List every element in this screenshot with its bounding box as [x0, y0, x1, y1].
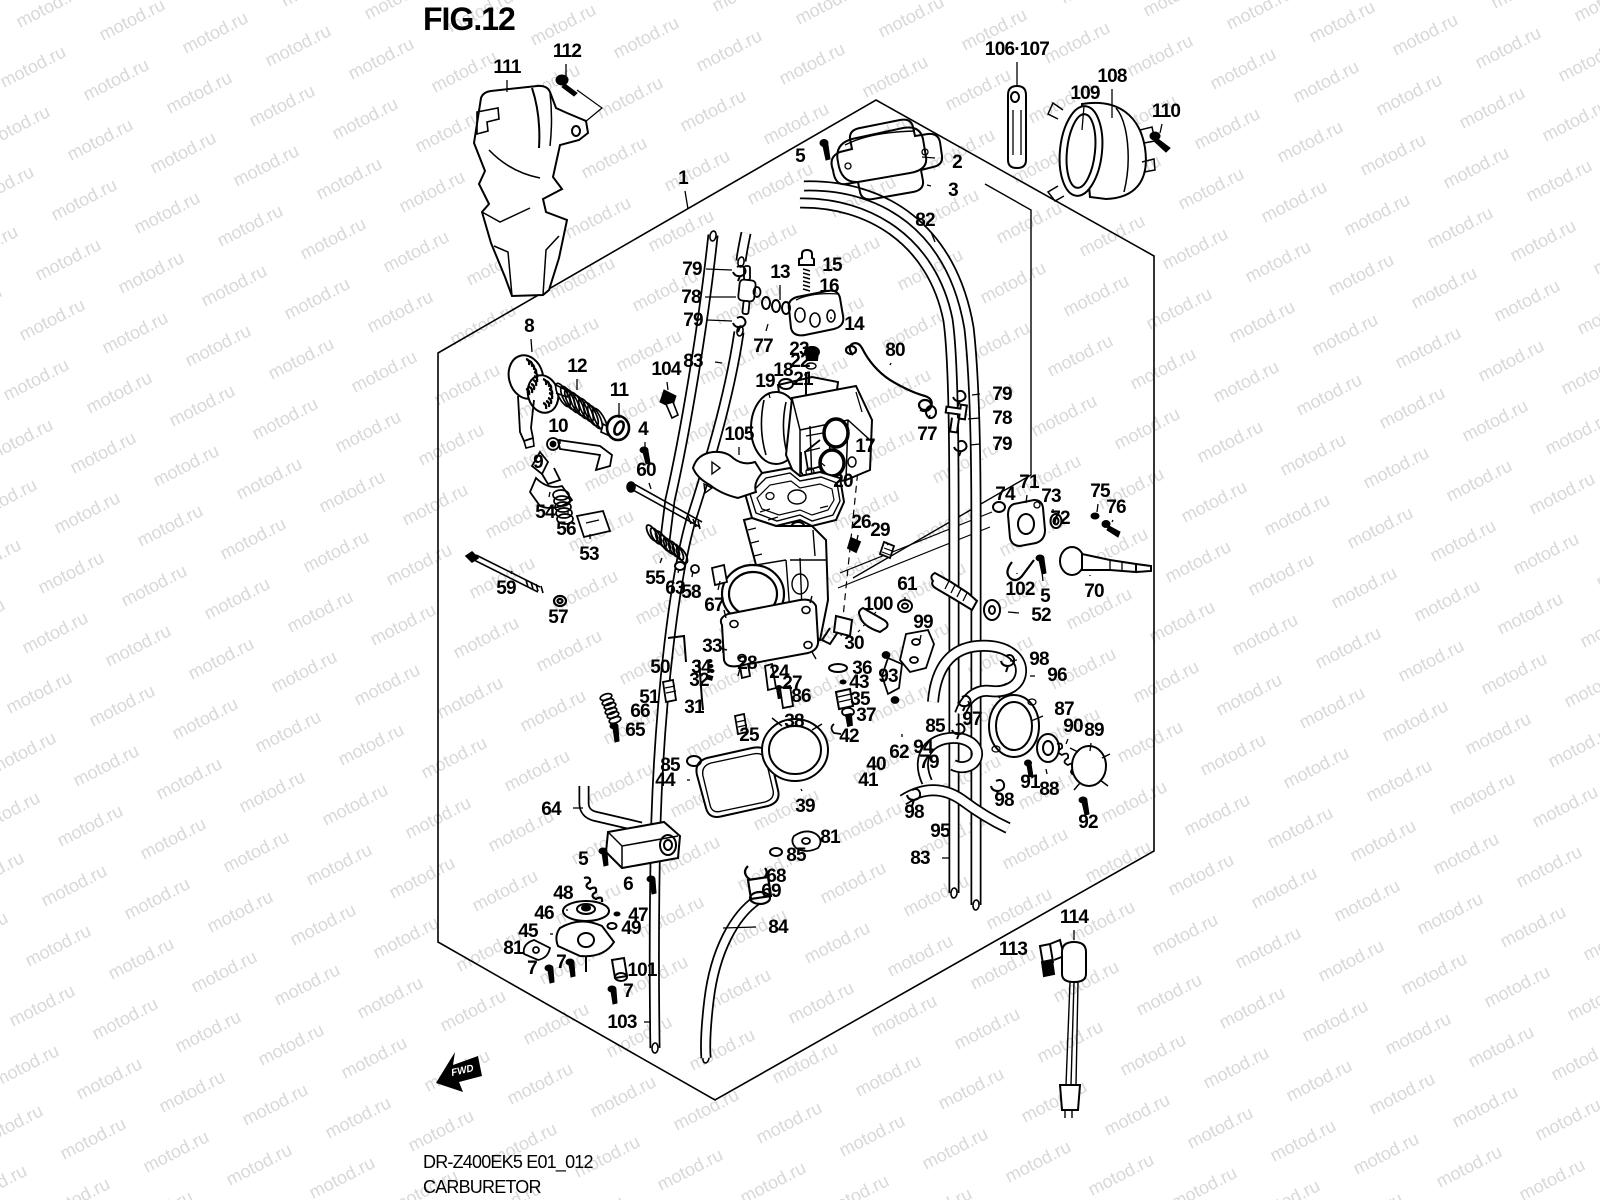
- svg-text:79: 79: [683, 310, 703, 331]
- svg-text:19: 19: [755, 371, 775, 392]
- svg-text:11: 11: [610, 380, 630, 401]
- svg-text:5: 5: [1040, 586, 1051, 607]
- svg-text:79: 79: [992, 384, 1012, 405]
- svg-text:100: 100: [863, 594, 893, 615]
- svg-text:88: 88: [1039, 779, 1059, 800]
- svg-text:80: 80: [885, 340, 905, 361]
- svg-text:25: 25: [739, 725, 760, 746]
- svg-text:12: 12: [567, 356, 587, 377]
- svg-text:32: 32: [689, 670, 709, 691]
- svg-text:106·107: 106·107: [985, 39, 1049, 60]
- svg-text:29: 29: [870, 520, 890, 541]
- svg-text:5: 5: [795, 146, 806, 167]
- svg-text:111: 111: [493, 57, 521, 78]
- svg-text:98: 98: [1029, 649, 1049, 670]
- svg-text:17: 17: [855, 436, 875, 457]
- svg-text:42: 42: [839, 726, 859, 747]
- svg-text:33: 33: [702, 636, 722, 657]
- svg-text:57: 57: [548, 607, 568, 628]
- svg-text:77: 77: [753, 336, 773, 357]
- svg-text:7: 7: [527, 958, 537, 979]
- svg-text:9: 9: [533, 452, 543, 473]
- svg-text:15: 15: [822, 255, 843, 276]
- svg-text:89: 89: [1084, 720, 1104, 741]
- svg-text:90: 90: [1063, 716, 1083, 737]
- svg-text:14: 14: [844, 314, 865, 335]
- svg-text:91: 91: [1020, 772, 1041, 793]
- svg-text:60: 60: [636, 460, 656, 481]
- svg-text:67: 67: [704, 595, 724, 616]
- svg-text:37: 37: [856, 705, 876, 726]
- svg-text:101: 101: [627, 960, 658, 981]
- svg-text:105: 105: [724, 424, 755, 445]
- svg-text:113: 113: [999, 939, 1027, 960]
- svg-text:6: 6: [623, 874, 633, 895]
- svg-text:78: 78: [681, 287, 701, 308]
- svg-text:7: 7: [623, 981, 633, 1002]
- svg-text:84: 84: [768, 917, 789, 938]
- svg-text:104: 104: [651, 359, 682, 380]
- svg-text:65: 65: [625, 720, 646, 741]
- svg-text:53: 53: [579, 544, 599, 565]
- svg-text:81: 81: [503, 938, 524, 959]
- svg-text:66: 66: [630, 701, 650, 722]
- svg-text:10: 10: [548, 416, 568, 437]
- svg-text:38: 38: [784, 711, 804, 732]
- svg-text:72: 72: [1050, 508, 1070, 529]
- svg-text:4: 4: [638, 419, 649, 440]
- svg-text:85: 85: [925, 716, 946, 737]
- svg-text:78: 78: [992, 408, 1012, 429]
- svg-text:79: 79: [919, 752, 939, 773]
- svg-text:24: 24: [769, 662, 790, 683]
- svg-text:85: 85: [786, 845, 807, 866]
- svg-text:81: 81: [820, 827, 841, 848]
- svg-text:98: 98: [994, 790, 1014, 811]
- svg-text:48: 48: [553, 883, 573, 904]
- svg-text:114: 114: [1060, 907, 1089, 928]
- svg-text:77: 77: [917, 424, 937, 445]
- svg-text:92: 92: [1078, 812, 1098, 833]
- svg-text:26: 26: [851, 512, 871, 533]
- svg-text:55: 55: [645, 568, 666, 589]
- svg-text:59: 59: [496, 578, 516, 599]
- svg-text:50: 50: [650, 657, 670, 678]
- svg-text:103: 103: [607, 1012, 637, 1033]
- svg-text:61: 61: [897, 574, 918, 595]
- svg-text:74: 74: [995, 484, 1016, 505]
- svg-text:52: 52: [1031, 605, 1051, 626]
- svg-text:8: 8: [524, 316, 534, 337]
- svg-text:83: 83: [683, 351, 703, 372]
- svg-text:76: 76: [1106, 497, 1126, 518]
- svg-text:96: 96: [1047, 665, 1067, 686]
- svg-text:58: 58: [681, 582, 701, 603]
- svg-text:DR-Z400EK5 E01_012: DR-Z400EK5 E01_012: [423, 1152, 594, 1173]
- svg-text:99: 99: [913, 612, 933, 633]
- svg-text:73: 73: [1041, 486, 1061, 507]
- svg-text:31: 31: [684, 697, 705, 718]
- svg-text:69: 69: [761, 881, 781, 902]
- svg-text:2: 2: [952, 152, 962, 173]
- svg-text:56: 56: [556, 519, 576, 540]
- svg-text:97: 97: [962, 709, 982, 730]
- svg-text:102: 102: [1005, 579, 1035, 600]
- svg-text:70: 70: [1084, 581, 1104, 602]
- svg-text:21: 21: [793, 369, 814, 390]
- svg-text:5: 5: [578, 849, 589, 870]
- svg-text:41: 41: [858, 770, 879, 791]
- svg-text:16: 16: [819, 276, 839, 297]
- svg-text:28: 28: [737, 653, 757, 674]
- svg-text:82: 82: [915, 210, 935, 231]
- svg-text:108: 108: [1097, 66, 1127, 87]
- svg-text:1: 1: [678, 168, 689, 189]
- svg-text:3: 3: [948, 180, 958, 201]
- svg-text:39: 39: [795, 796, 815, 817]
- svg-text:FIG.12: FIG.12: [423, 1, 515, 37]
- svg-text:83: 83: [910, 848, 930, 869]
- svg-text:79: 79: [992, 434, 1012, 455]
- svg-text:110: 110: [1152, 101, 1180, 122]
- svg-text:109: 109: [1070, 83, 1100, 104]
- svg-text:95: 95: [930, 821, 951, 842]
- svg-text:54: 54: [535, 502, 556, 523]
- svg-text:CARBURETOR: CARBURETOR: [423, 1177, 541, 1197]
- svg-text:79: 79: [682, 259, 702, 280]
- svg-text:20: 20: [833, 471, 853, 492]
- svg-text:71: 71: [1019, 472, 1040, 493]
- svg-text:62: 62: [889, 742, 909, 763]
- svg-text:112: 112: [553, 41, 581, 62]
- svg-text:98: 98: [904, 802, 924, 823]
- svg-text:7: 7: [556, 952, 566, 973]
- svg-text:93: 93: [878, 666, 898, 687]
- svg-text:30: 30: [844, 633, 864, 654]
- svg-text:64: 64: [541, 799, 562, 820]
- svg-text:13: 13: [770, 262, 790, 283]
- svg-text:44: 44: [655, 770, 676, 791]
- svg-text:49: 49: [621, 918, 641, 939]
- svg-text:18: 18: [773, 360, 793, 381]
